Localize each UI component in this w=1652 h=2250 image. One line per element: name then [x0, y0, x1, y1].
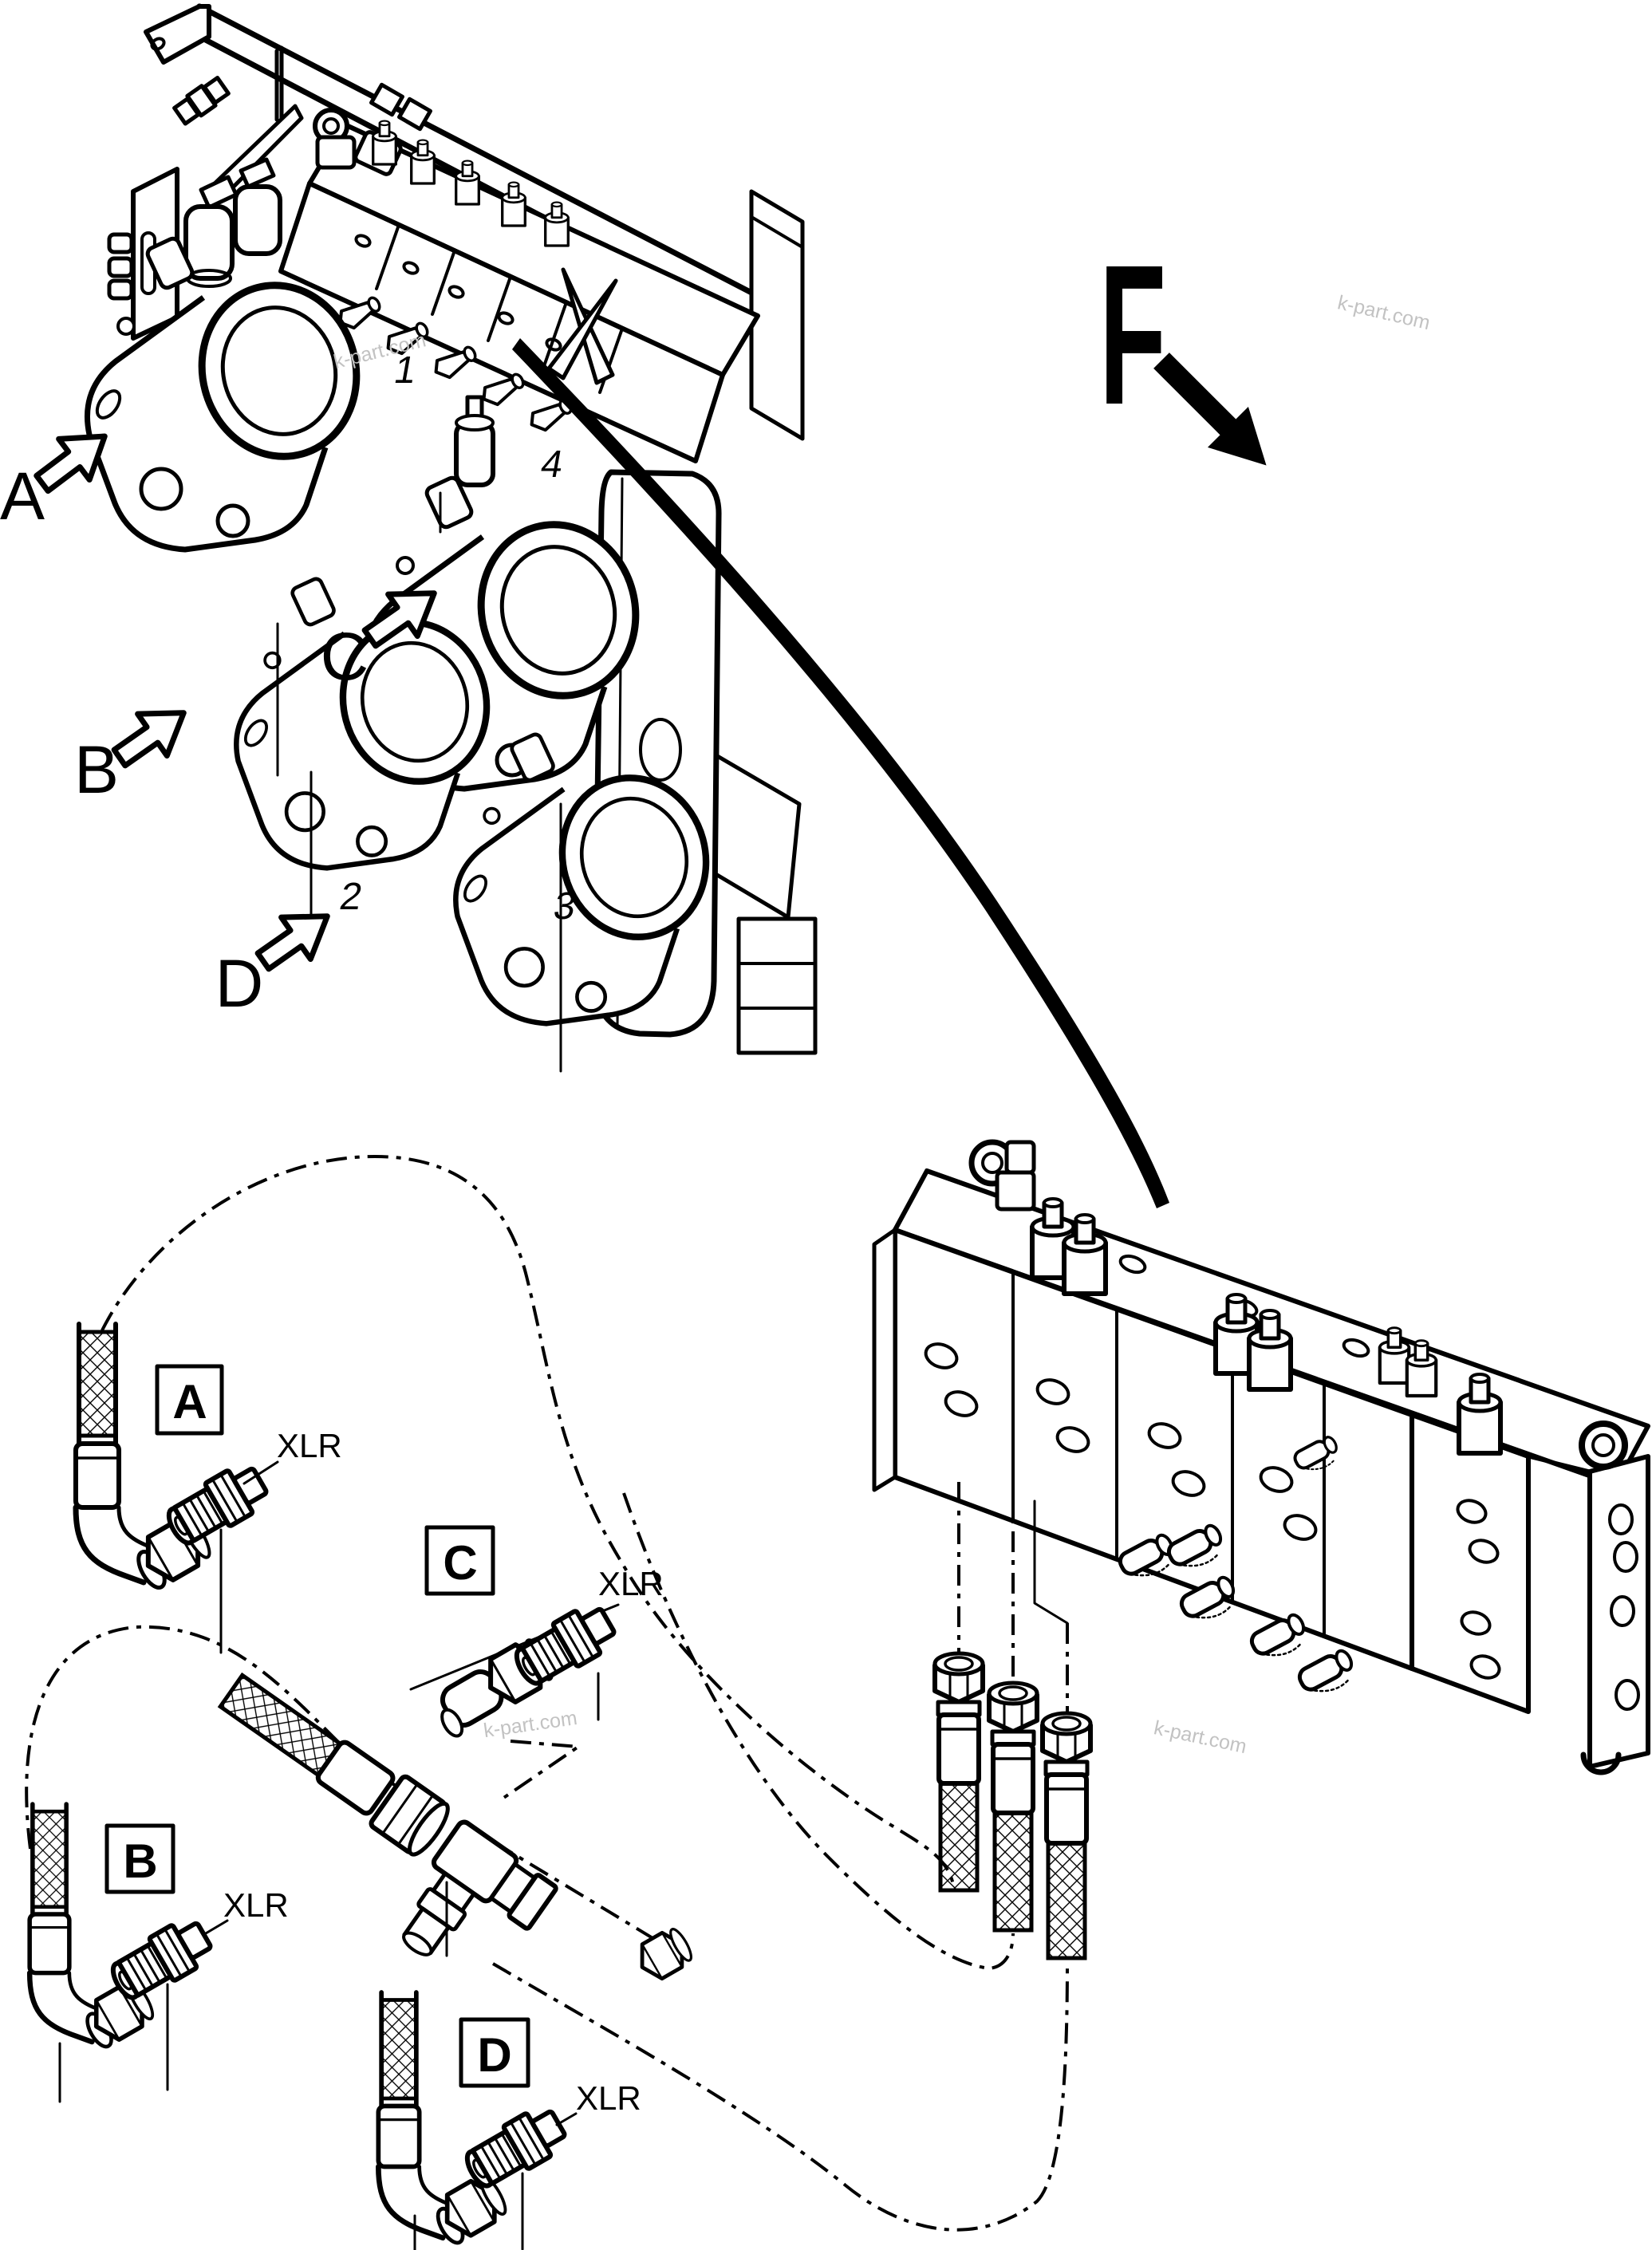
xlr-fitting-d	[459, 2102, 570, 2194]
bleed-valve	[456, 397, 493, 485]
detail-box-label-d: D	[477, 2028, 511, 2082]
hose-assembly	[1043, 1713, 1090, 1958]
detail-box-label-c: C	[443, 1536, 477, 1590]
hose-detail-c: C XLR	[411, 1527, 664, 1740]
watermark: k-part.com	[1335, 291, 1432, 334]
hose-detail-d: D XLR	[378, 1992, 641, 2250]
callout-label-d: D	[215, 946, 264, 1021]
fitting-label-xlr-a: XLR	[277, 1427, 342, 1464]
hose-assembly	[989, 1683, 1037, 1930]
xlr-fitting-c	[509, 1599, 620, 1692]
watermark: k-part.com	[1152, 1716, 1248, 1758]
upper-valve-bank	[281, 110, 758, 485]
hose-detail-b: B XLR	[30, 1804, 289, 2102]
callout-label-a: A	[0, 459, 45, 534]
parts-diagram-canvas: A B C D 1 2 3 4 F	[0, 0, 1652, 2250]
center-tee-hose	[170, 1666, 560, 1997]
part-number-4: 4	[538, 443, 566, 486]
detail-box-label-b: B	[123, 1834, 157, 1888]
loose-nut	[633, 1925, 696, 1984]
routing-line-corner	[503, 1741, 578, 1799]
part-number-2: 2	[337, 875, 365, 918]
watermark: k-part.com	[482, 1707, 578, 1742]
callout-label-b: B	[74, 732, 119, 807]
fitting-label-xlr-d: XLR	[576, 2079, 641, 2117]
callout-label-c: C	[321, 619, 369, 694]
fitting-label-xlr-c: XLR	[598, 1565, 664, 1602]
xlr-fitting-a	[161, 1459, 272, 1551]
view-direction-label: F	[1099, 223, 1166, 446]
fitting-label-xlr-b: XLR	[223, 1886, 289, 1924]
hose-detail-a: A XLR	[76, 1324, 342, 1653]
page: { "colors": { "ink": "#000000", "paper":…	[0, 0, 1652, 2250]
xlr-fitting-b	[105, 1913, 216, 2006]
port-stubs	[109, 234, 132, 298]
control-valve-detail-view	[874, 1142, 1648, 1958]
callout-arrow-b	[105, 692, 199, 779]
engine-pump-assembly-view: A B C D 1 2 3 4 F	[0, 6, 1287, 1208]
detail-box-label-a: A	[172, 1375, 207, 1428]
hose-assembly	[935, 1653, 983, 1890]
